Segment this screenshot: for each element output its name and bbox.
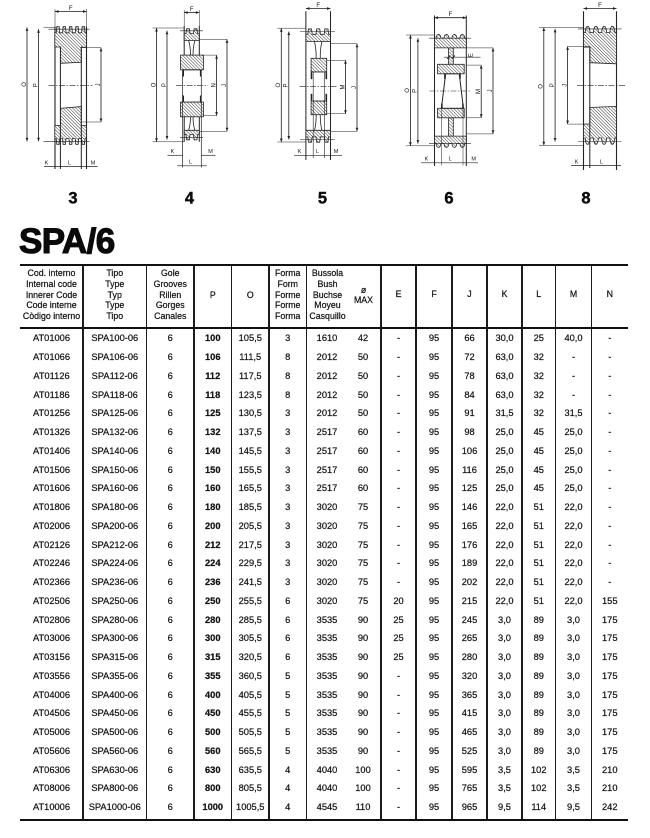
svg-text:K: K (575, 159, 579, 165)
svg-text:P: P (413, 89, 419, 93)
svg-text:L: L (449, 157, 452, 163)
svg-text:F: F (316, 3, 320, 9)
svg-text:M: M (476, 89, 482, 94)
svg-text:4: 4 (185, 190, 195, 208)
svg-text:L: L (600, 159, 603, 165)
svg-text:J: J (222, 84, 228, 87)
svg-text:O: O (22, 82, 28, 87)
svg-text:J: J (96, 83, 102, 86)
svg-text:6: 6 (444, 190, 453, 208)
svg-text:M: M (334, 149, 339, 155)
svg-text:5: 5 (318, 190, 327, 208)
svg-text:O: O (151, 82, 157, 87)
svg-text:P: P (550, 83, 556, 87)
svg-text:K: K (171, 149, 175, 155)
svg-text:L: L (316, 149, 319, 155)
svg-text:F: F (69, 6, 73, 12)
svg-text:L: L (68, 160, 71, 166)
svg-text:M: M (340, 85, 346, 90)
svg-text:J: J (488, 89, 494, 92)
svg-text:K: K (45, 160, 49, 166)
svg-text:O: O (405, 88, 411, 93)
svg-text:P: P (33, 83, 39, 87)
svg-text:J: J (562, 84, 568, 87)
svg-text:F: F (449, 12, 453, 18)
svg-text:M: M (208, 149, 213, 155)
svg-text:M: M (91, 160, 96, 166)
svg-text:M: M (471, 157, 476, 163)
svg-text:O: O (276, 82, 282, 87)
svg-text:K: K (298, 149, 302, 155)
svg-text:E: E (469, 53, 475, 57)
svg-text:J: J (352, 86, 358, 89)
svg-text:N: N (211, 83, 217, 87)
svg-text:F: F (598, 3, 602, 9)
svg-text:P: P (162, 83, 168, 87)
svg-text:L: L (189, 160, 192, 166)
svg-text:K: K (425, 157, 429, 163)
svg-text:P: P (284, 83, 290, 87)
svg-text:3: 3 (68, 190, 77, 208)
svg-text:F: F (190, 7, 194, 13)
svg-text:8: 8 (581, 190, 590, 208)
svg-text:O: O (539, 84, 545, 89)
